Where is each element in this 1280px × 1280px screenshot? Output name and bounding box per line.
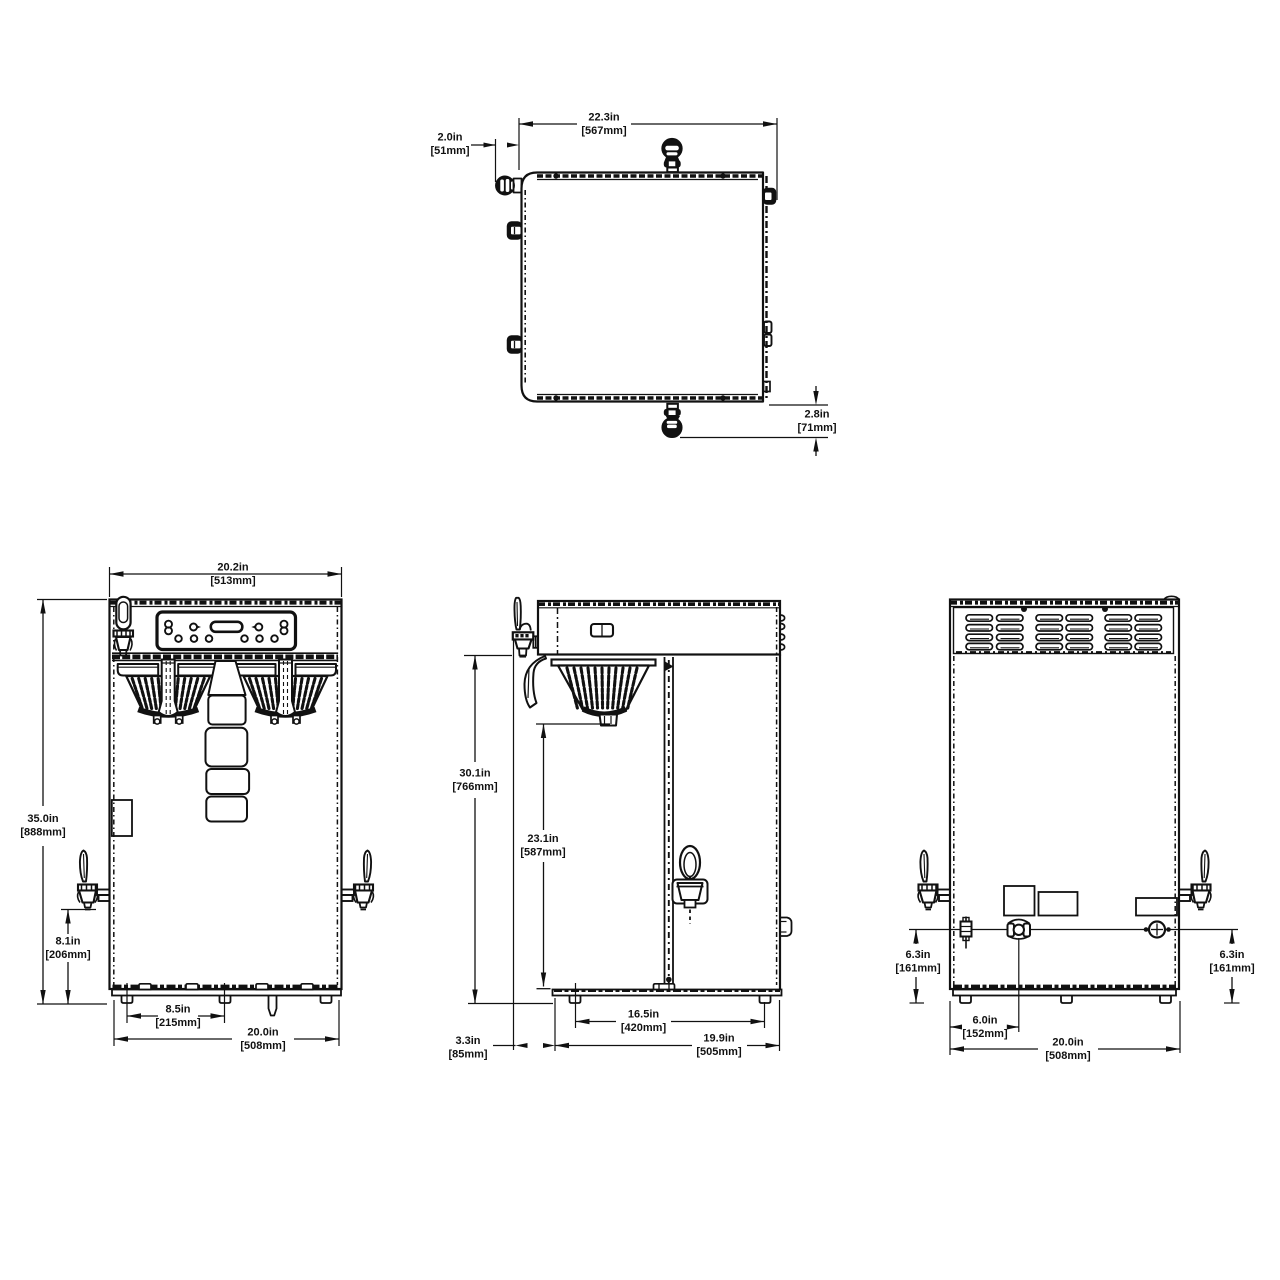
svg-text:[71mm]: [71mm] bbox=[797, 422, 836, 434]
svg-text:20.0in: 20.0in bbox=[247, 1027, 278, 1039]
svg-text:20.2in: 20.2in bbox=[217, 562, 248, 574]
svg-text:[161mm]: [161mm] bbox=[895, 963, 941, 975]
svg-text:19.9in: 19.9in bbox=[703, 1033, 734, 1045]
svg-text:16.5in: 16.5in bbox=[628, 1009, 659, 1021]
svg-text:[161mm]: [161mm] bbox=[1209, 963, 1255, 975]
svg-text:30.1in: 30.1in bbox=[459, 768, 490, 780]
svg-text:[51mm]: [51mm] bbox=[430, 145, 469, 157]
svg-text:[508mm]: [508mm] bbox=[240, 1040, 286, 1052]
svg-text:[420mm]: [420mm] bbox=[621, 1022, 667, 1034]
svg-text:[215mm]: [215mm] bbox=[155, 1017, 201, 1029]
svg-text:8.1in: 8.1in bbox=[55, 936, 80, 948]
svg-text:[567mm]: [567mm] bbox=[581, 125, 627, 137]
svg-text:6.3in: 6.3in bbox=[905, 949, 930, 961]
svg-text:8.5in: 8.5in bbox=[165, 1004, 190, 1016]
svg-text:2.0in: 2.0in bbox=[437, 132, 462, 144]
svg-text:22.3in: 22.3in bbox=[588, 112, 619, 124]
svg-text:[505mm]: [505mm] bbox=[696, 1046, 742, 1058]
svg-text:[206mm]: [206mm] bbox=[45, 949, 91, 961]
svg-text:6.0in: 6.0in bbox=[972, 1015, 997, 1027]
svg-text:3.3in: 3.3in bbox=[455, 1035, 480, 1047]
svg-text:[513mm]: [513mm] bbox=[210, 575, 256, 587]
svg-text:35.0in: 35.0in bbox=[27, 813, 58, 825]
svg-text:[152mm]: [152mm] bbox=[962, 1028, 1008, 1040]
svg-text:23.1in: 23.1in bbox=[527, 833, 558, 845]
svg-text:[766mm]: [766mm] bbox=[452, 781, 498, 793]
svg-text:2.8in: 2.8in bbox=[804, 409, 829, 421]
svg-text:[888mm]: [888mm] bbox=[20, 827, 66, 839]
svg-text:20.0in: 20.0in bbox=[1052, 1037, 1083, 1049]
svg-text:[587mm]: [587mm] bbox=[520, 847, 566, 859]
svg-text:6.3in: 6.3in bbox=[1219, 949, 1244, 961]
svg-text:[85mm]: [85mm] bbox=[448, 1049, 487, 1061]
svg-text:[508mm]: [508mm] bbox=[1045, 1050, 1091, 1062]
